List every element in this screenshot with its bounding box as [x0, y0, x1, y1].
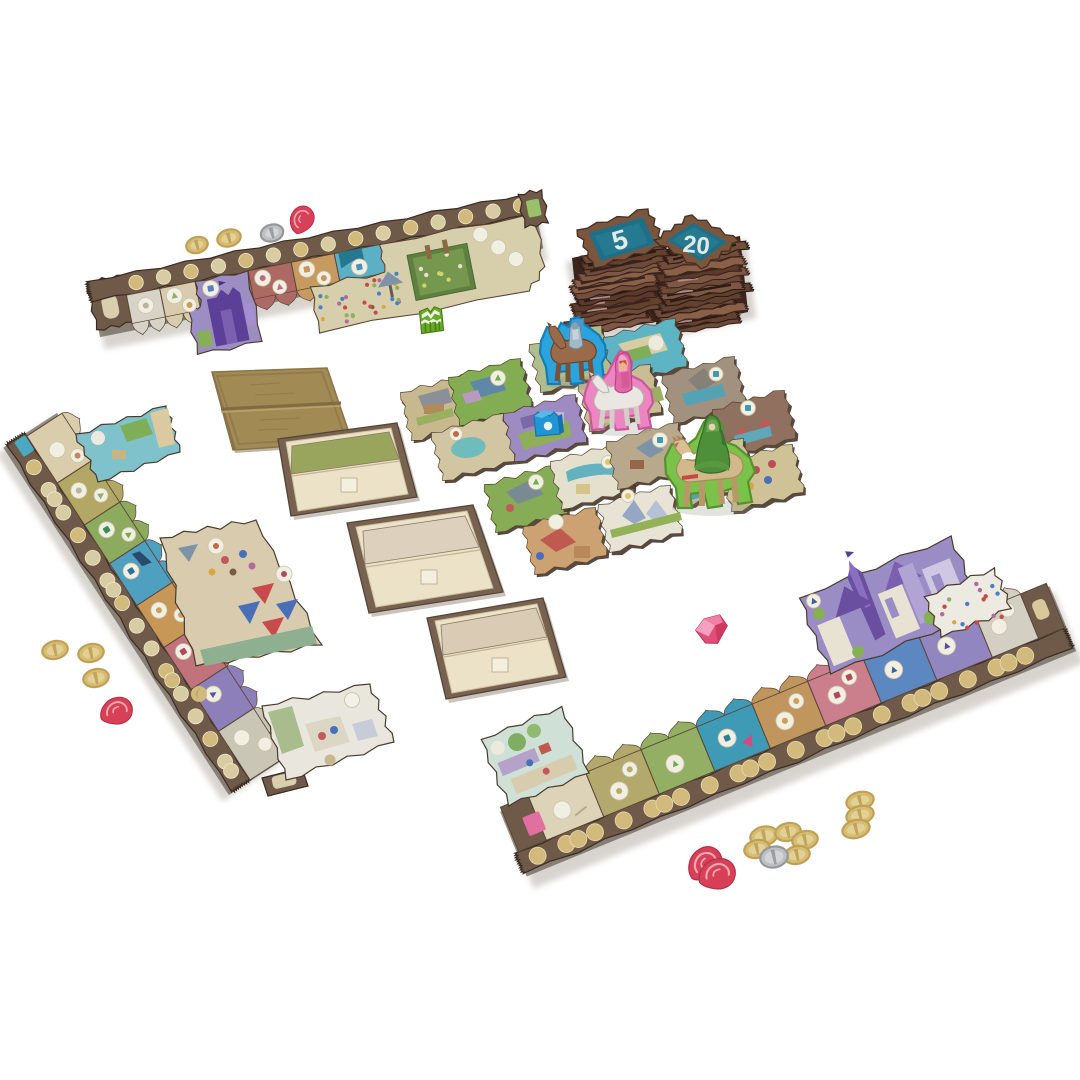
svg-text:20: 20 [682, 231, 711, 261]
